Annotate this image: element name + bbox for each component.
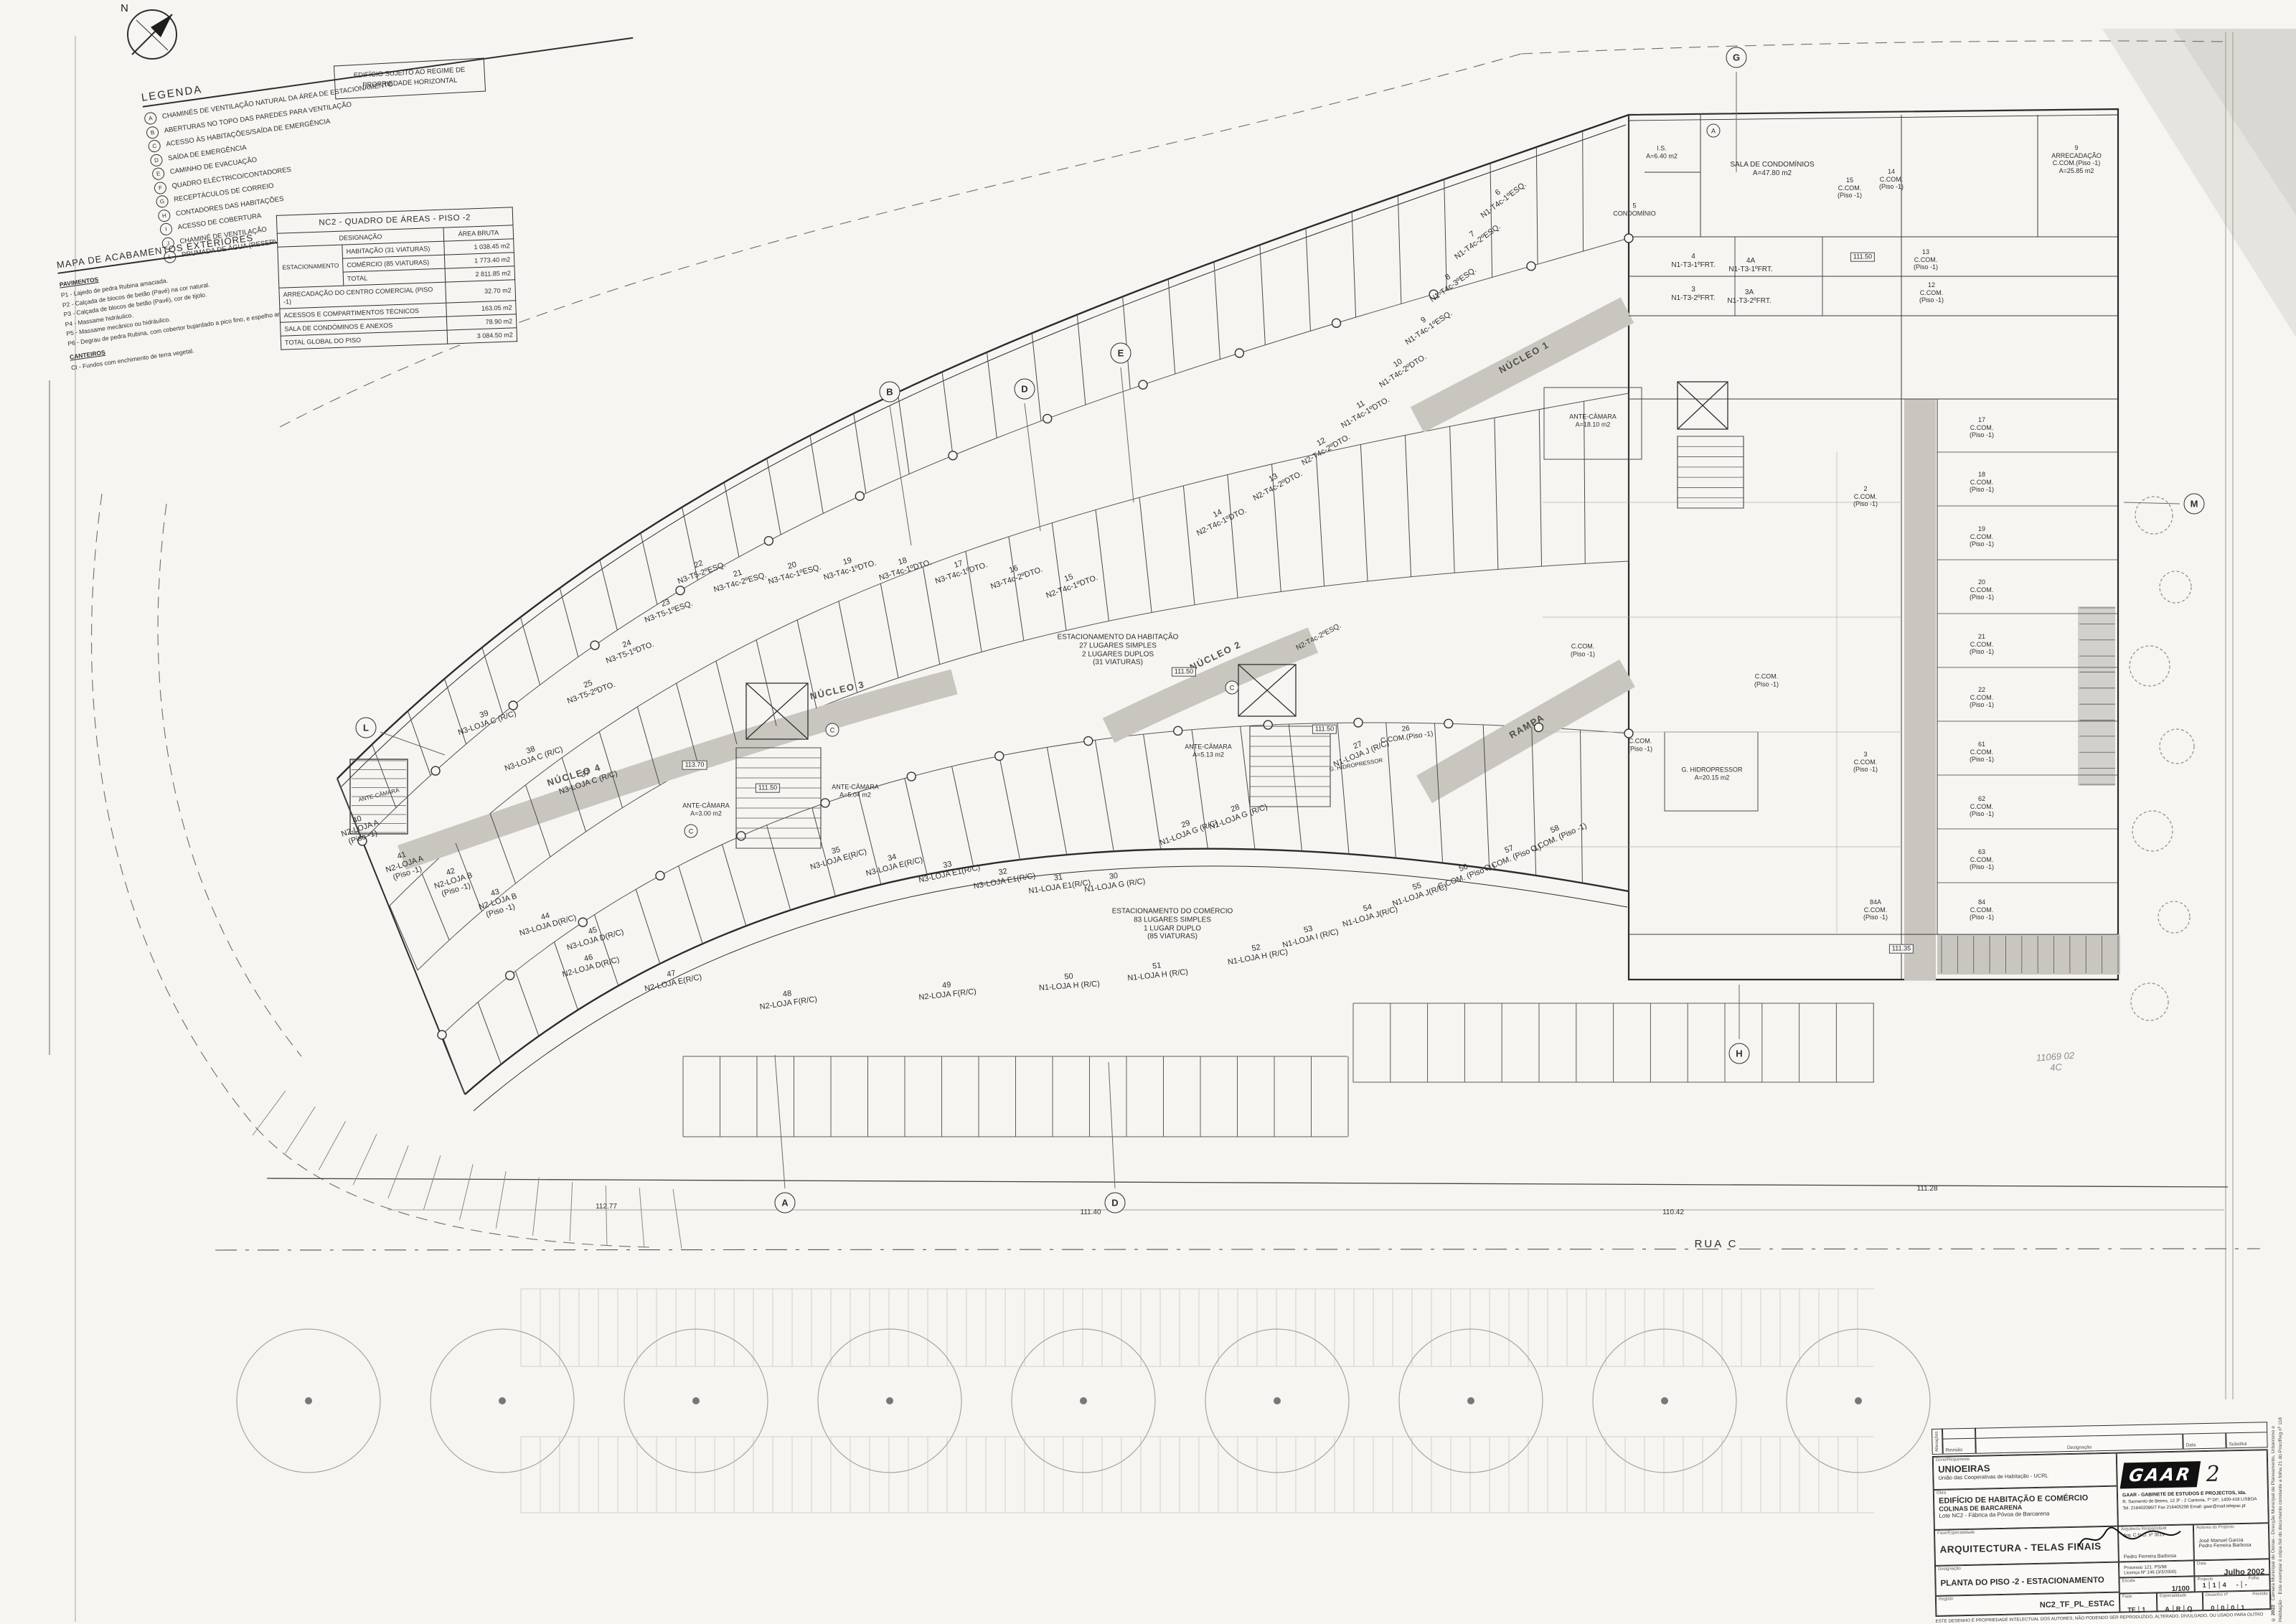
plan-label: 12 C.COM. (Piso -1)	[1919, 281, 1944, 304]
revision-substitui: Substitui	[2226, 1432, 2267, 1448]
plan-label: C.COM. (Piso -1)	[1754, 672, 1779, 687]
title-block-main: Dono/Requerente UNIOEIRAS União das Coop…	[1932, 1449, 2272, 1617]
area-table: NC2 - QUADRO DE ÁREAS - PISO -2 DESIGNAÇ…	[276, 207, 517, 349]
plan-label: C.COM. (Piso -1)	[1628, 737, 1652, 752]
arquitecto-name: Pedro Ferreira Barbosa	[2124, 1554, 2176, 1560]
obra-label: Obra	[1937, 1491, 1946, 1496]
grid-bubble: A	[775, 1193, 796, 1214]
legend-key-icon: H	[157, 209, 171, 222]
legend-key-icon: C	[148, 139, 161, 153]
north-label: N	[121, 2, 128, 14]
grid-bubble: E	[1111, 343, 1131, 364]
plan-label: 111.35	[1889, 944, 1914, 954]
plan-label: 113.70	[682, 761, 707, 770]
scan-edge-shadow	[49, 380, 50, 1055]
plan-label: 63 C.COM. (Piso -1)	[1970, 848, 1994, 871]
stamp-copyright: © 2022	[2271, 1605, 2276, 1622]
row-value: 3 084.50 m2	[447, 328, 517, 344]
plan-label: 19 C.COM. (Piso -1)	[1970, 525, 1994, 548]
revision-designacao: Designação	[1975, 1434, 2183, 1454]
legend-key-icon: B	[146, 126, 159, 139]
wing-storage-lines	[1937, 452, 2118, 883]
grid-bubble: D	[1105, 1193, 1126, 1214]
plan-label: 5 CONDOMÍNIO	[1613, 202, 1656, 217]
plan-label: ANTE-CÂMARA A=18.10 m2	[1569, 413, 1617, 428]
plan-label: 3 N1-T3-2ºFRT.	[1671, 286, 1715, 303]
grid-bubble: G	[1726, 47, 1747, 68]
fase-label: Fase/Especialidade	[1937, 1531, 1975, 1536]
plan-label: 110.42	[1662, 1208, 1684, 1217]
plan-label: 111.50	[1312, 725, 1337, 734]
north-arrow: N	[108, 0, 187, 72]
drawing-sheet: N EDIFÍCIO SUJEITO AO REGIME DE PROPRIED…	[0, 0, 2296, 1624]
legend-key-icon: E	[151, 167, 165, 181]
plan-label: 22 C.COM. (Piso -1)	[1970, 686, 1994, 709]
plan-label: 3 C.COM. (Piso -1)	[1853, 751, 1878, 774]
escala-label: Escala	[2122, 1579, 2135, 1583]
licenca-value: Licença Nº 146 (3/3/2000)	[2124, 1569, 2189, 1576]
plan-label: 111.40	[1080, 1208, 1101, 1217]
street-label: RUA C	[1695, 1238, 1739, 1251]
plan-label: 21 C.COM. (Piso -1)	[1970, 633, 1994, 656]
autor-2: Pedro Ferreira Barbosa	[2198, 1542, 2264, 1549]
plan-label: 2 C.COM. (Piso -1)	[1853, 485, 1878, 508]
sheet-edge-lines	[2226, 32, 2233, 1399]
legend-ref-icon: C	[684, 825, 698, 838]
revision-data: Data	[2183, 1432, 2226, 1449]
fase-cells: TF1	[2125, 1606, 2148, 1614]
wing-corridor	[1904, 399, 1936, 980]
plan-label: 20 C.COM. (Piso -1)	[1970, 578, 1994, 601]
revisao-col-label: Revisão	[2252, 1592, 2268, 1596]
plan-label: ANTE-CÂMARA A=5.13 m2	[1185, 743, 1232, 758]
plan-label: 111.50	[756, 784, 780, 793]
plan-label: ESTACIONAMENTO DA HABITAÇÃO 27 LUGARES S…	[1058, 633, 1179, 667]
plan-label: 112.77	[596, 1203, 617, 1211]
plan-label: 4 N1-T3-1ºFRT.	[1671, 253, 1715, 270]
signature	[2076, 1521, 2184, 1555]
especialidade-cells: ARQ	[2162, 1605, 2195, 1613]
legend-key-icon: D	[149, 153, 163, 166]
legend-ref-icon: C	[826, 723, 839, 737]
grid-bubble: H	[1729, 1043, 1750, 1064]
title-block: Alterações Revisão Designação Data Subst…	[1932, 1422, 2272, 1624]
legend-key-icon: I	[159, 222, 173, 236]
plan-label: SALA DE CONDOMÍNIOS A=47.80 m2	[1730, 161, 1814, 178]
autores-label: Autores do Projecto	[2196, 1525, 2234, 1530]
client-label: Dono/Requerente	[1936, 1458, 1970, 1463]
plan-label: 18 C.COM. (Piso -1)	[1970, 471, 1994, 494]
group-estacionamento: ESTACIONAMENTO	[278, 245, 344, 288]
plan-label: 15 C.COM. (Piso -1)	[1838, 177, 1862, 200]
plan-label: G. HIDROPRESSOR A=20.15 m2	[1681, 766, 1742, 781]
plan-label: 111.50	[1850, 253, 1875, 262]
plan-label: ANTE-CÂMARA A=5.04 m2	[832, 783, 879, 798]
grid-bubble: L	[356, 718, 377, 738]
plan-label: 3A N1-T3-2ºFRT.	[1727, 288, 1771, 306]
plan-label: 111.28	[1916, 1185, 1937, 1193]
plan-label: 14 C.COM. (Piso -1)	[1879, 168, 1904, 191]
folha-label: Folha	[2248, 1576, 2259, 1580]
folha-cells: --	[2234, 1581, 2250, 1588]
fase-col-label: Fase	[2122, 1595, 2132, 1599]
sheet-number: 2	[2206, 1461, 2220, 1486]
plan-label: 62 C.COM. (Piso -1)	[1970, 795, 1994, 818]
roads	[215, 1178, 2260, 1250]
legend-ref-icon: C	[1225, 681, 1239, 695]
wing-walls	[1544, 115, 2118, 980]
grid-bubble: B	[880, 382, 900, 403]
wing-stair-band	[1937, 934, 2120, 975]
plan-label: 84A C.COM. (Piso -1)	[1863, 898, 1888, 921]
plan-label: 84 C.COM. (Piso -1)	[1970, 898, 1994, 921]
revision-alteracoes: Alterações	[1932, 1429, 1943, 1455]
legend-key-icon: A	[143, 111, 157, 125]
plan-label: 4A N1-T3-1ºFRT.	[1728, 257, 1772, 274]
legend-key-icon: G	[155, 194, 169, 208]
designacao-label: Designação	[1938, 1567, 1961, 1572]
plan-label: 61 C.COM. (Piso -1)	[1970, 741, 1994, 764]
projecto-label: Projecto	[2197, 1577, 2213, 1582]
data-label: Data	[2197, 1562, 2206, 1566]
row-value: 32.70 m2	[446, 280, 516, 303]
desenho-cells: 0001	[2208, 1604, 2247, 1612]
registo-value: NC2_TF_PL_ESTAC	[1941, 1600, 2114, 1612]
legend-ref-icon: A	[1707, 124, 1721, 138]
plan-label: C.COM. (Piso -1)	[1571, 642, 1595, 657]
plan-label: ANTE-CÂMARA A=3.00 m2	[682, 802, 730, 817]
plan-label: 9 ARRECADAÇÃO C.COM.(Piso -1) A=25.85 m2	[2051, 144, 2102, 174]
revision-revisao: Revisão	[1942, 1438, 1975, 1455]
plan-label: 13 C.COM. (Piso -1)	[1914, 248, 1938, 271]
plan-label: ESTACIONAMENTO DO COMÉRCIO 83 LUGARES SI…	[1112, 907, 1233, 941]
plan-label: 17 C.COM. (Piso -1)	[1970, 416, 1994, 439]
plan-label: I.S. A=6.40 m2	[1646, 144, 1678, 159]
legend-key-icon: F	[154, 181, 167, 194]
municipal-stamp: © 2022 Câmara Municipal de Oeiras - Dire…	[2270, 1417, 2285, 1622]
gaar-logo: GAAR	[2120, 1461, 2201, 1488]
grid-bubble: D	[1015, 379, 1035, 400]
stamp-line2: Este exemplar é cópia fiel do documento …	[2278, 1417, 2283, 1594]
registo-label: Registo	[1939, 1597, 1953, 1601]
plan-label: 111.50	[1172, 667, 1196, 677]
plan-label: 11069 02 4C	[2036, 1050, 2075, 1074]
designacao-value: PLANTA DO PISO -2 - ESTACIONAMENTO	[1940, 1576, 2114, 1588]
grid-bubble: M	[2184, 494, 2205, 515]
especialidade-label: Especialidade	[2160, 1594, 2186, 1599]
right-stair	[2078, 606, 2115, 786]
projecto-cells: 114	[2200, 1581, 2229, 1589]
desenho-label: Desenho nº	[2206, 1592, 2228, 1597]
